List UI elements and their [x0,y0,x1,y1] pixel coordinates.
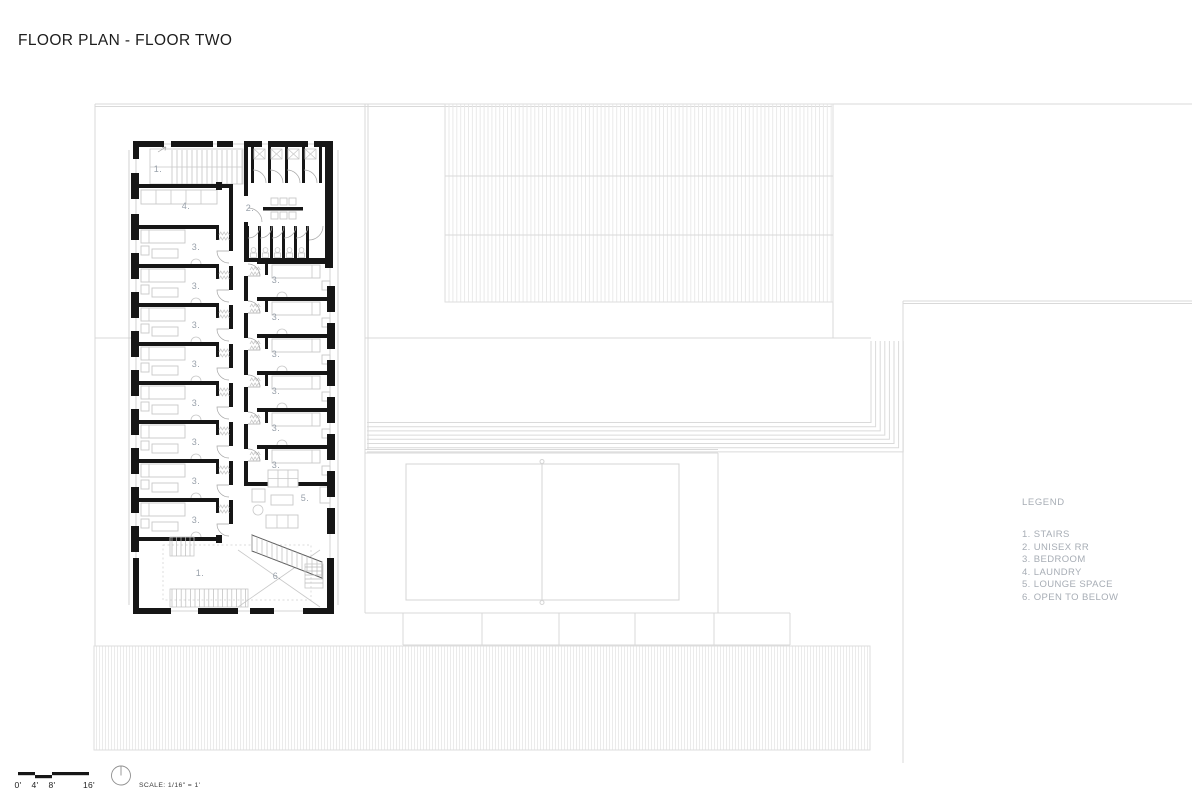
room-label: 3. [272,423,281,433]
bedrooms-left [139,225,233,537]
sport-court [406,460,679,605]
legend-item-unisex-rr: 2. UNISEX RR [1022,542,1192,555]
legend-item-lounge-space: 5. LOUNGE SPACE [1022,579,1192,592]
room-label: 3. [192,398,201,408]
room-label: 3. [192,476,201,486]
room-label: 3. [192,320,201,330]
terrace-steps [367,341,903,452]
room-label: 6. [273,571,282,581]
floor-plan-canvas: 1.4.2.3.3.3.3.3.3.3.3.3.3.3.3.3.3.5.1.6. [0,0,1200,800]
scale-label-4: 4' [32,780,39,790]
scale-label-8: 8' [49,780,56,790]
stair-lower [139,535,311,607]
unisex-restroom [244,141,333,268]
room-label: 3. [272,275,281,285]
floor-plan-sheet: FLOOR PLAN - FLOOR TWO [0,0,1200,800]
scale-label-0: 0' [15,780,22,790]
scale-bar [18,772,89,778]
room-label: 3. [192,437,201,447]
room-label: 1. [154,164,163,174]
legend: LEGEND 1. STAIRS 2. UNISEX RR 3. BEDROOM… [1022,497,1192,604]
room-label: 3. [272,386,281,396]
room-label: 3. [192,515,201,525]
room-label: 5. [301,493,310,503]
legend-item-open-to-below: 6. OPEN TO BELOW [1022,592,1192,605]
lounge-space [244,470,332,528]
room-label: 1. [196,568,205,578]
room-label: 3. [272,460,281,470]
scale-label-16: 16' [83,780,95,790]
room-label: 3. [192,359,201,369]
building: 1.4.2.3.3.3.3.3.3.3.3.3.3.3.3.3.3.5.1.6. [129,141,338,614]
room-label: 3. [192,242,201,252]
bedrooms-right [244,260,332,486]
legend-item-bedroom: 3. BEDROOM [1022,554,1192,567]
room-label: 3. [192,281,201,291]
legend-item-stairs: 1. STAIRS [1022,529,1192,542]
room-label: 4. [182,201,191,211]
room-label: 3. [272,312,281,322]
room-label: 3. [272,349,281,359]
scale-note: SCALE: 1/16" = 1' [139,782,200,789]
legend-item-laundry: 4. LAUNDRY [1022,567,1192,580]
ground-hatch [94,646,870,750]
roof-hatch [445,104,833,302]
room-label: 2. [246,203,255,213]
legend-title: LEGEND [1022,497,1192,508]
stair-upper [150,147,243,184]
north-arrow-icon [112,766,131,785]
